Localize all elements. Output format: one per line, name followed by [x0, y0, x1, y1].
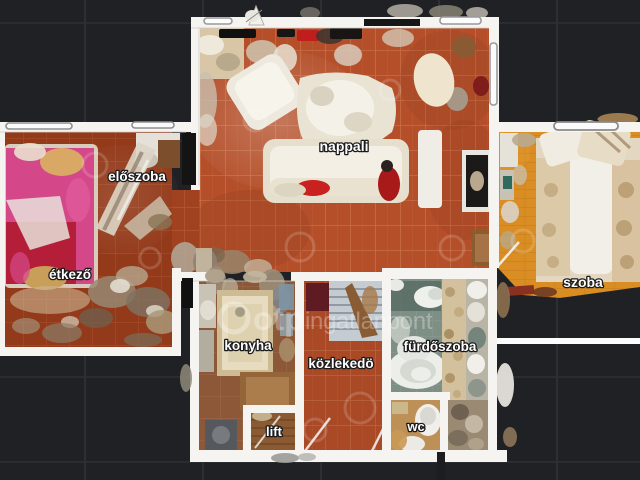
svg-text:konyha: konyha — [224, 338, 272, 353]
svg-text:közlekedö: közlekedö — [308, 356, 373, 371]
svg-text:étkező: étkező — [49, 267, 91, 282]
svg-text:előszoba: előszoba — [108, 169, 166, 184]
svg-text:szoba: szoba — [563, 274, 603, 290]
svg-text:wc: wc — [406, 419, 424, 434]
svg-text:otp: otp — [253, 300, 304, 337]
svg-text:ingatlanpont: ingatlanpont — [305, 308, 433, 335]
svg-text:nappali: nappali — [319, 138, 368, 154]
svg-text:fürdőszoba: fürdőszoba — [404, 339, 477, 354]
svg-text:lift: lift — [266, 424, 283, 439]
